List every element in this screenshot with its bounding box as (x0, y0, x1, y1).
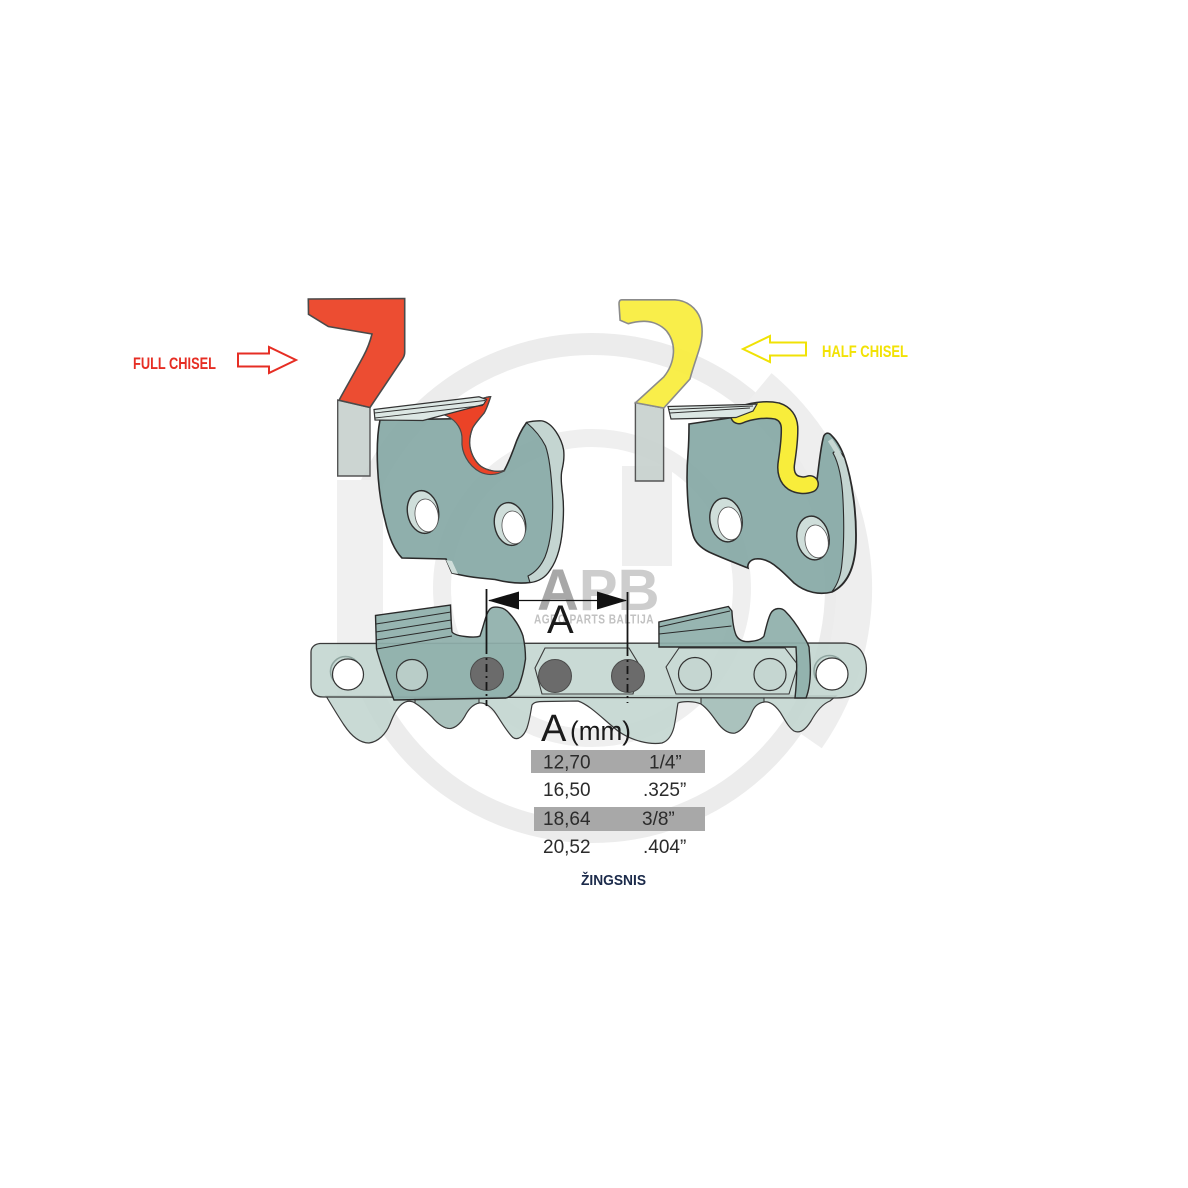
svg-text:1/4”: 1/4” (649, 753, 682, 774)
svg-text:.404”: .404” (643, 837, 686, 858)
svg-text:18,64: 18,64 (543, 809, 591, 830)
svg-text:20,52: 20,52 (543, 837, 591, 858)
svg-text:ŽINGSNIS: ŽINGSNIS (581, 871, 646, 889)
svg-text:3/8”: 3/8” (642, 809, 675, 830)
svg-text:HALF CHISEL: HALF CHISEL (822, 342, 908, 361)
svg-text:.325”: .325” (643, 780, 686, 801)
svg-text:12,70: 12,70 (543, 753, 591, 774)
svg-text:A: A (547, 598, 574, 642)
svg-text:(mm): (mm) (570, 716, 631, 746)
svg-text:A: A (541, 708, 567, 750)
svg-text:16,50: 16,50 (543, 780, 591, 801)
svg-text:FULL CHISEL: FULL CHISEL (133, 354, 216, 373)
